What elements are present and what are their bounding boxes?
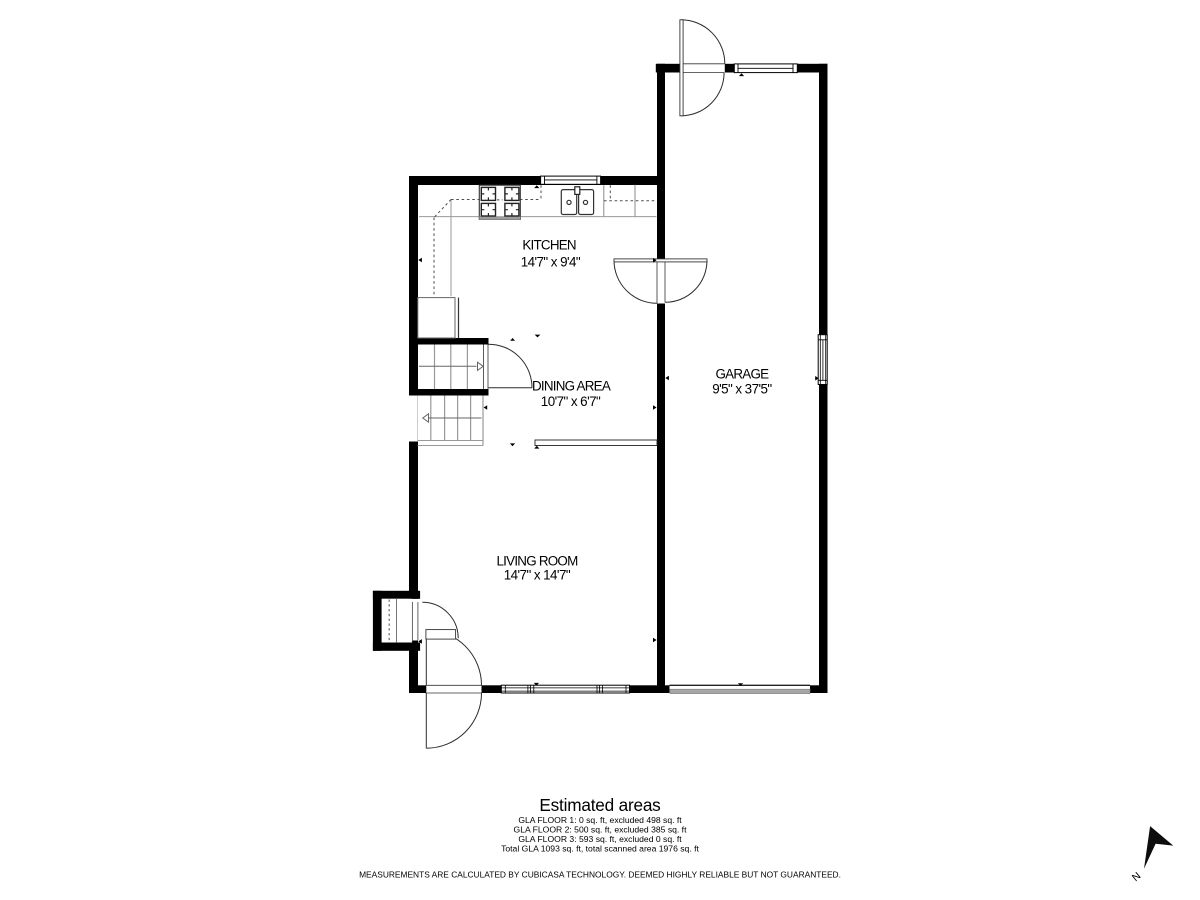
svg-text:GARAGE: GARAGE bbox=[716, 366, 770, 381]
svg-text:LIVING ROOM: LIVING ROOM bbox=[496, 553, 578, 568]
svg-text:DINING AREA: DINING AREA bbox=[532, 378, 611, 393]
svg-text:Total GLA 1093 sq. ft, total s: Total GLA 1093 sq. ft, total scanned are… bbox=[501, 843, 699, 853]
svg-text:9'5" x 37'5": 9'5" x 37'5" bbox=[712, 381, 772, 396]
svg-text:14'7" x 9'4": 14'7" x 9'4" bbox=[521, 255, 581, 270]
svg-text:KITCHEN: KITCHEN bbox=[522, 238, 576, 253]
svg-text:10'7" x 6'7": 10'7" x 6'7" bbox=[541, 394, 601, 409]
svg-text:Estimated areas: Estimated areas bbox=[539, 795, 660, 815]
svg-text:MEASUREMENTS ARE CALCULATED BY: MEASUREMENTS ARE CALCULATED BY CUBICASA … bbox=[359, 870, 841, 880]
svg-text:14'7" x 14'7": 14'7" x 14'7" bbox=[504, 568, 571, 583]
